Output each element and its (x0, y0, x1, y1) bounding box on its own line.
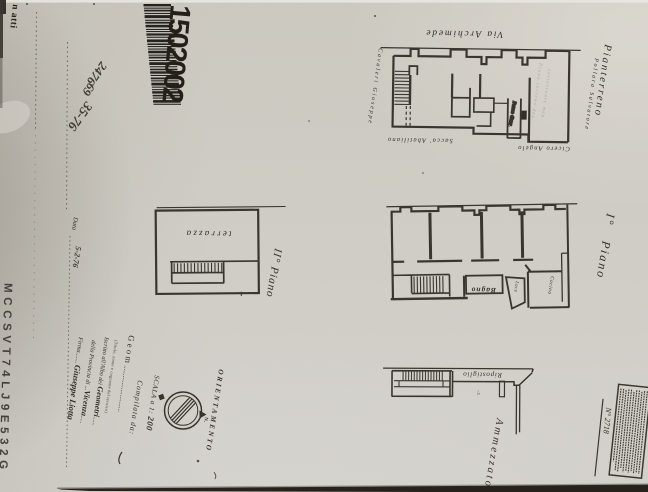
svg-text:Cicero Angelo: Cicero Angelo (517, 144, 570, 152)
svg-text:Bagno: Bagno (470, 286, 497, 295)
svg-text:terrazza: terrazza (184, 229, 231, 240)
svg-text:Sacca' Abatiliano: Sacca' Abatiliano (387, 136, 453, 144)
svg-text:Ripostiglio: Ripostiglio (462, 370, 503, 379)
svg-text:Via Archimede: Via Archimede (424, 27, 503, 38)
